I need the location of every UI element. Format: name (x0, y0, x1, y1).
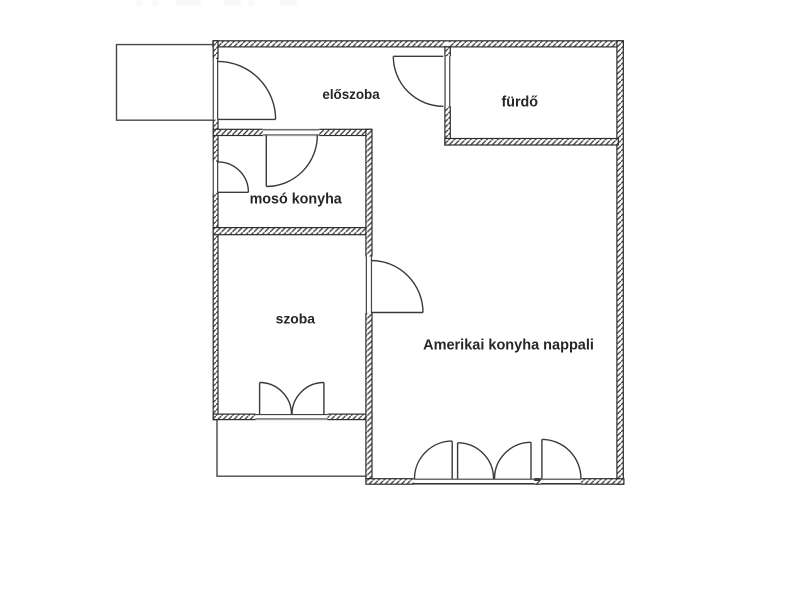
svg-text:szoba: szoba (276, 311, 316, 327)
svg-text:fürdő: fürdő (502, 95, 539, 111)
svg-text:előszoba: előszoba (322, 87, 380, 102)
svg-text:Amerikai konyha nappali: Amerikai konyha nappali (423, 337, 594, 353)
svg-text:mosó konyha: mosó konyha (250, 192, 343, 208)
